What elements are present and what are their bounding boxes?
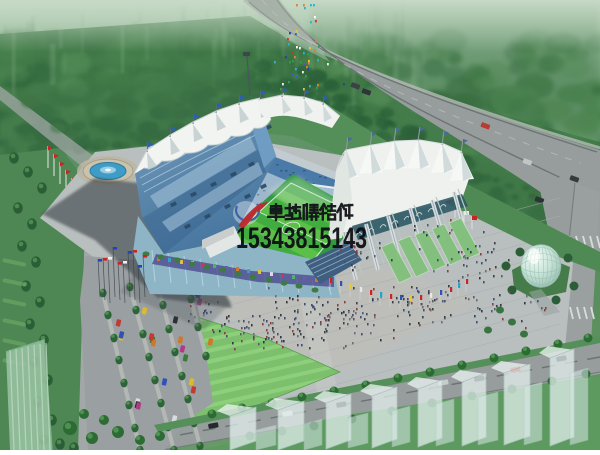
svg-text:15343815143: 15343815143 — [236, 222, 367, 255]
